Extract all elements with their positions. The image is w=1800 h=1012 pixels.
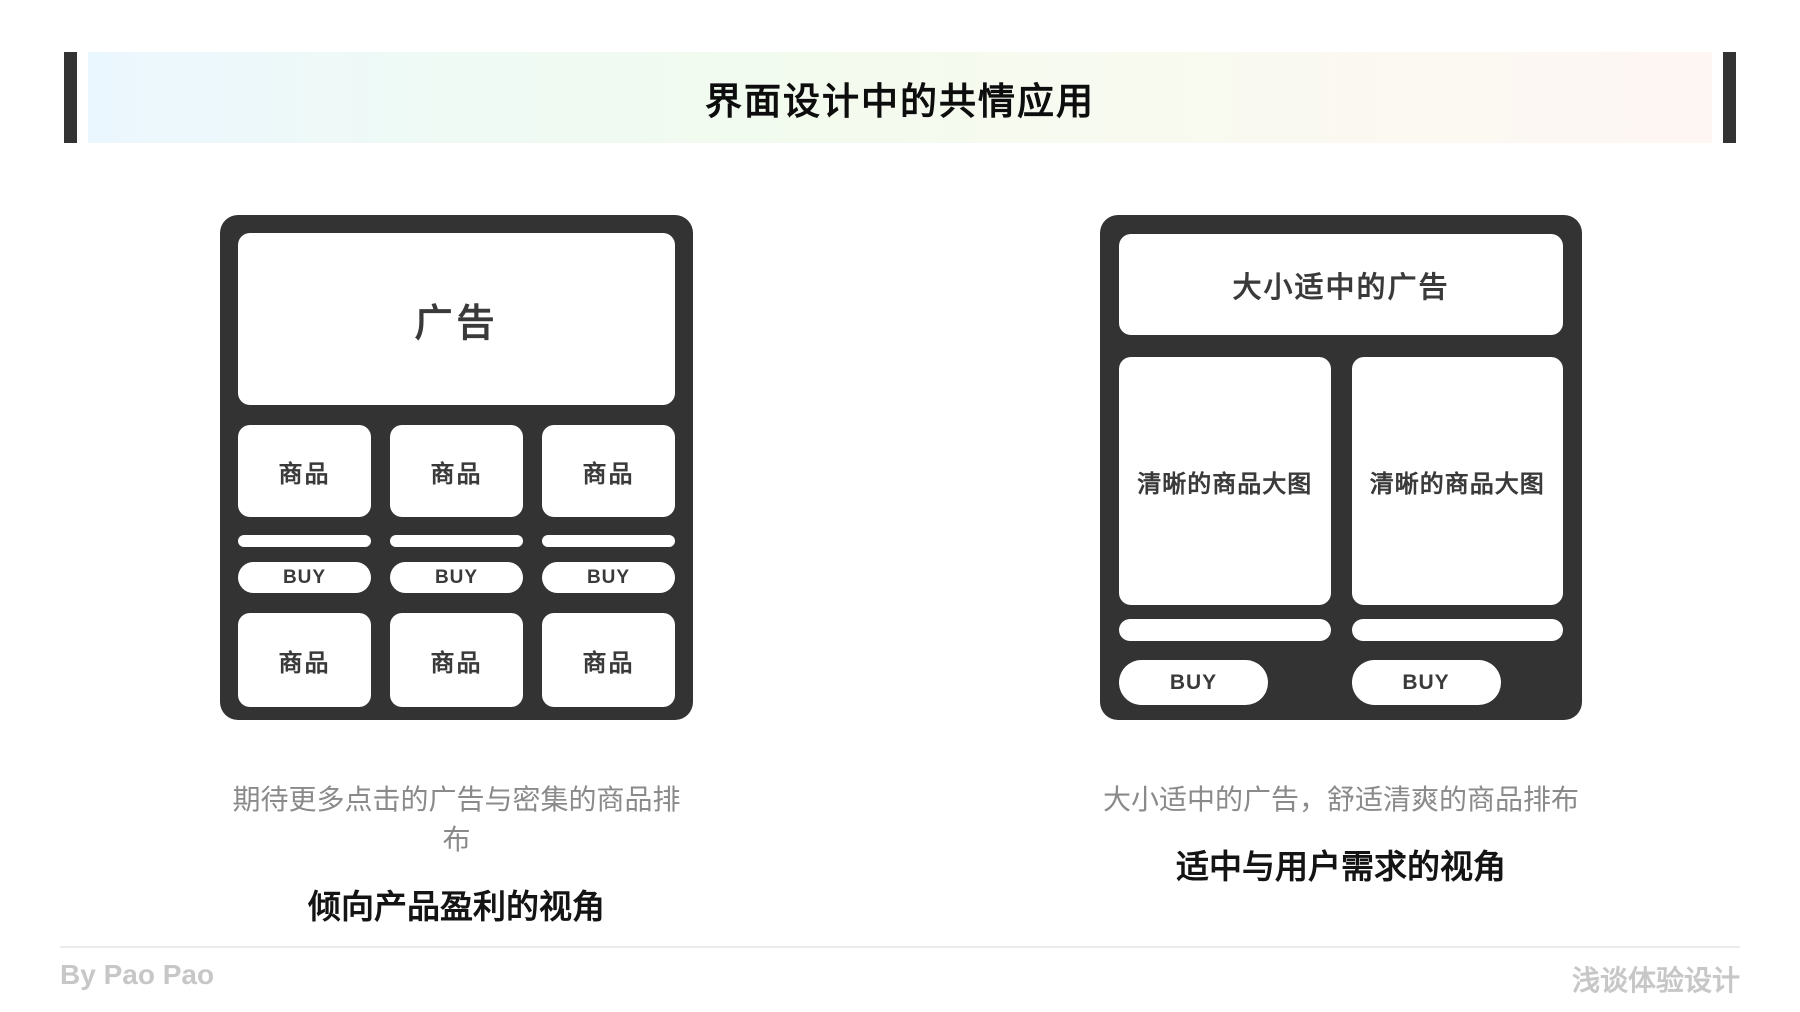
product-row-top: 商品 商品 商品 (238, 425, 675, 517)
header-accent-bar-left (64, 52, 77, 143)
panel-viewpoint-title: 倾向产品盈利的视角 (220, 880, 693, 928)
buy-button-row: BUY BUY (1119, 660, 1563, 705)
panel-profit-oriented: 广告 商品 商品 商品 BUY BUY B (220, 215, 693, 928)
product-card: 商品 (390, 425, 523, 517)
product-label: 商品 (279, 454, 331, 489)
mockup-dense-layout: 广告 商品 商品 商品 BUY BUY B (220, 215, 693, 720)
title-bar: 界面设计中的共情应用 (88, 52, 1712, 143)
text-placeholder-row (1119, 619, 1563, 641)
buy-label: BUY (1402, 671, 1449, 695)
buy-button: BUY (1119, 660, 1268, 705)
footer-brand: 浅谈体验设计 (1572, 959, 1740, 999)
buy-button: BUY (238, 562, 371, 593)
panel-caption: 大小适中的广告，舒适清爽的商品排布 (1100, 778, 1582, 818)
product-image-label: 清晰的商品大图 (1137, 464, 1312, 499)
panel-caption: 期待更多点击的广告与密集的商品排布 (220, 778, 693, 858)
buy-label: BUY (587, 567, 630, 589)
footer-author: By Pao Pao (60, 959, 214, 991)
text-placeholder-bar (1119, 619, 1331, 641)
product-card: 商品 (390, 613, 523, 707)
mockup-comfortable-layout: 大小适中的广告 清晰的商品大图 清晰的商品大图 BUY BUY (1100, 215, 1582, 720)
product-label: 商品 (583, 454, 635, 489)
ad-label: 广告 (414, 292, 498, 347)
product-image-row: 清晰的商品大图 清晰的商品大图 (1119, 357, 1563, 605)
product-label: 商品 (431, 643, 483, 678)
page-title: 界面设计中的共情应用 (705, 71, 1095, 125)
product-card: 商品 (238, 425, 371, 517)
buy-button: BUY (542, 562, 675, 593)
footer-divider (60, 946, 1740, 948)
product-image-label: 清晰的商品大图 (1370, 464, 1545, 499)
text-placeholder-bar (1352, 619, 1564, 641)
buy-label: BUY (283, 567, 326, 589)
product-row-bottom: 商品 商品 商品 (238, 613, 675, 707)
buy-button: BUY (390, 562, 523, 593)
buy-label: BUY (435, 567, 478, 589)
text-placeholder-row (238, 535, 675, 547)
product-label: 商品 (431, 454, 483, 489)
product-image-card: 清晰的商品大图 (1352, 357, 1564, 605)
product-label: 商品 (279, 643, 331, 678)
text-placeholder-bar (238, 535, 371, 547)
product-image-card: 清晰的商品大图 (1119, 357, 1331, 605)
product-label: 商品 (583, 643, 635, 678)
buy-button-row: BUY BUY BUY (238, 562, 675, 593)
ad-card: 大小适中的广告 (1119, 234, 1563, 335)
product-card: 商品 (542, 425, 675, 517)
header-accent-bar-right (1723, 52, 1736, 143)
ad-card: 广告 (238, 233, 675, 405)
text-placeholder-bar (542, 535, 675, 547)
panel-user-oriented: 大小适中的广告 清晰的商品大图 清晰的商品大图 BUY BUY 大小适中的广告，… (1100, 215, 1582, 888)
panel-viewpoint-title: 适中与用户需求的视角 (1100, 840, 1582, 888)
buy-label: BUY (1170, 671, 1217, 695)
buy-button: BUY (1352, 660, 1501, 705)
product-card: 商品 (238, 613, 371, 707)
ad-label: 大小适中的广告 (1232, 264, 1449, 306)
text-placeholder-bar (390, 535, 523, 547)
product-card: 商品 (542, 613, 675, 707)
